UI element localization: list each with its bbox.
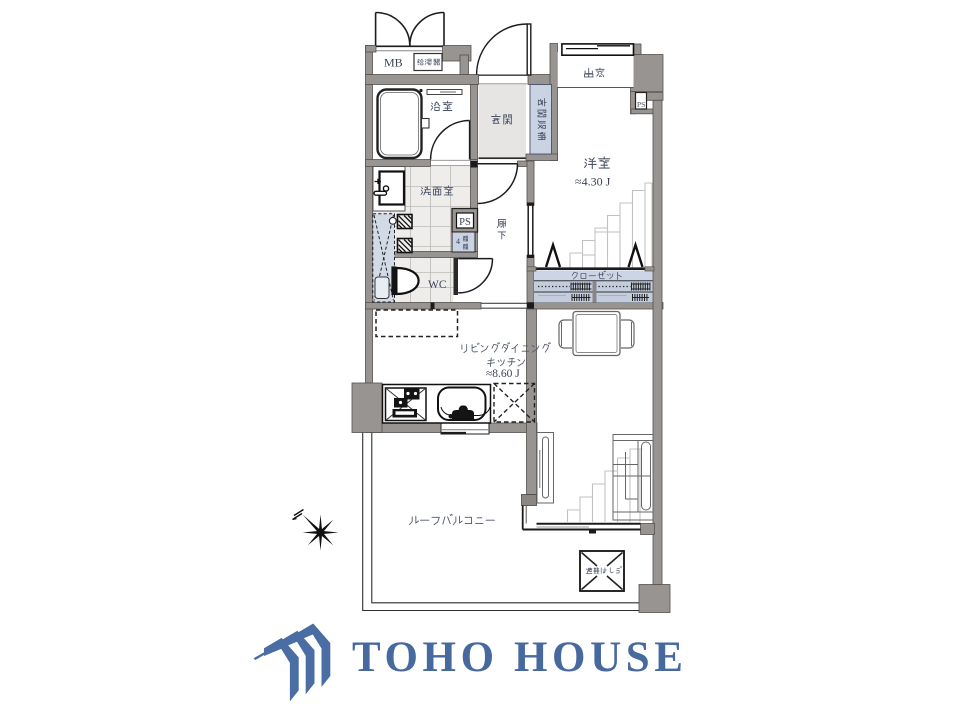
svg-text:MB: MB — [384, 56, 403, 70]
svg-text:PS: PS — [637, 100, 646, 109]
svg-text:WC: WC — [428, 279, 447, 291]
svg-text:4: 4 — [456, 237, 460, 246]
svg-text:TOHO HOUSE: TOHO HOUSE — [352, 634, 688, 681]
svg-text:≈8.60 J: ≈8.60 J — [486, 368, 520, 380]
svg-text:PS: PS — [459, 217, 471, 228]
svg-text:≈4.30 J: ≈4.30 J — [575, 175, 611, 189]
